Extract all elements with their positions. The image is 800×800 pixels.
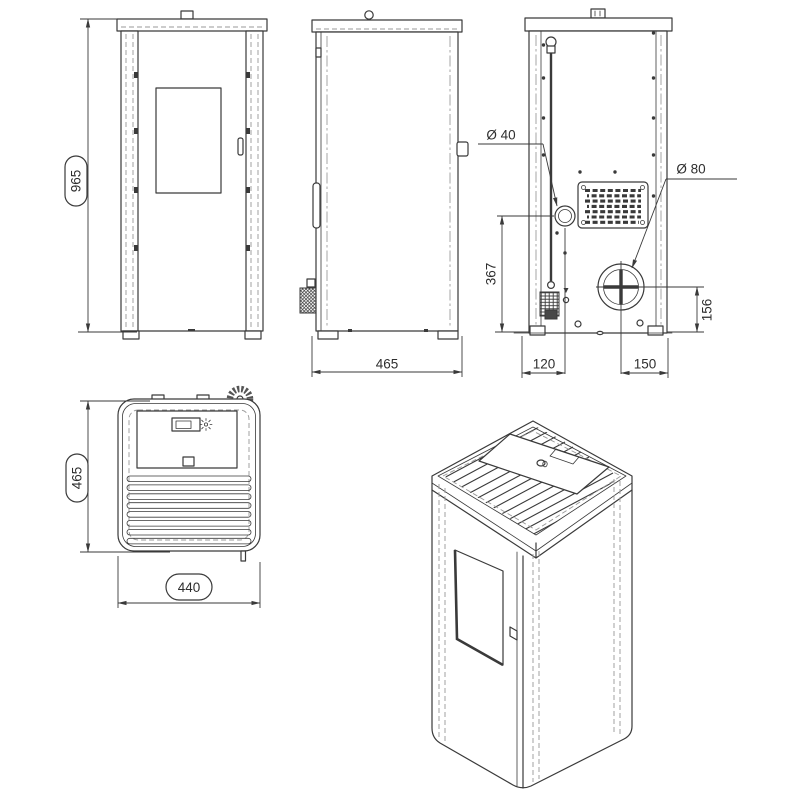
- top-view: 465 440: [66, 389, 260, 608]
- dim-intake-dia-label: Ø 40: [486, 128, 515, 143]
- dim-top-width-label: 440: [178, 580, 201, 595]
- dim-side-depth: 465: [312, 336, 462, 377]
- front-top-knob: [181, 11, 193, 19]
- side-air-grille: [300, 288, 316, 313]
- dim-top-depth-label: 465: [70, 467, 85, 490]
- top-rear-tab: [241, 551, 246, 561]
- dim-intake-height-label: 367: [484, 263, 499, 286]
- front-base-mark: [188, 329, 195, 332]
- rear-vent-grille: [578, 182, 648, 228]
- rear-bottom-screw-1: [575, 321, 581, 327]
- technical-drawing-page: 965 465: [0, 0, 800, 800]
- front-right-foot: [245, 331, 261, 339]
- front-top-cap: [117, 19, 267, 31]
- side-hinge-strip: [313, 183, 320, 228]
- rear-small-hole: [563, 297, 568, 302]
- dim-intake-offset-label: 120: [533, 357, 556, 372]
- side-door-handle: [457, 142, 468, 156]
- rear-ground-mark: [597, 331, 603, 334]
- rear-right-foot: [648, 326, 663, 335]
- side-base-mark-1: [348, 329, 352, 332]
- side-view: 465: [300, 11, 468, 377]
- rear-view: Ø 40 Ø 80 367 156 120: [478, 9, 737, 378]
- side-base-mark-2: [424, 329, 428, 332]
- dim-side-depth-label: 465: [376, 357, 399, 372]
- front-door-latch: [238, 138, 243, 155]
- dim-rear-flue-offset: 150: [621, 338, 668, 378]
- dim-flue-offset-label: 150: [634, 357, 657, 372]
- dim-flue-height-label: 156: [700, 299, 715, 322]
- rear-bottom-screw-2: [637, 320, 643, 326]
- iso-knob: [537, 460, 545, 466]
- side-top-knob: [365, 11, 373, 19]
- dim-flue-dia-label: Ø 80: [676, 162, 705, 177]
- rear-top-cap: [525, 18, 672, 31]
- dim-top-width: 440: [118, 556, 260, 608]
- rear-cable-plug: [545, 310, 557, 319]
- front-glass-window: [156, 88, 221, 193]
- rear-top-knob: [591, 9, 605, 18]
- side-hinge-top: [316, 48, 321, 57]
- top-lid-latch: [183, 457, 194, 466]
- front-view: 965: [65, 11, 267, 339]
- pellet-stove-drawing: 965 465: [0, 0, 800, 800]
- isometric-view: [432, 421, 632, 788]
- dim-rear-intake-offset: 120: [522, 336, 565, 378]
- side-outlet-box: [307, 279, 315, 287]
- side-rear-foot: [438, 331, 458, 339]
- side-body: [316, 32, 458, 331]
- side-front-foot: [318, 331, 338, 339]
- side-top-cap: [312, 20, 462, 32]
- dim-front-height-label: 965: [69, 170, 84, 193]
- rear-left-foot: [530, 326, 545, 335]
